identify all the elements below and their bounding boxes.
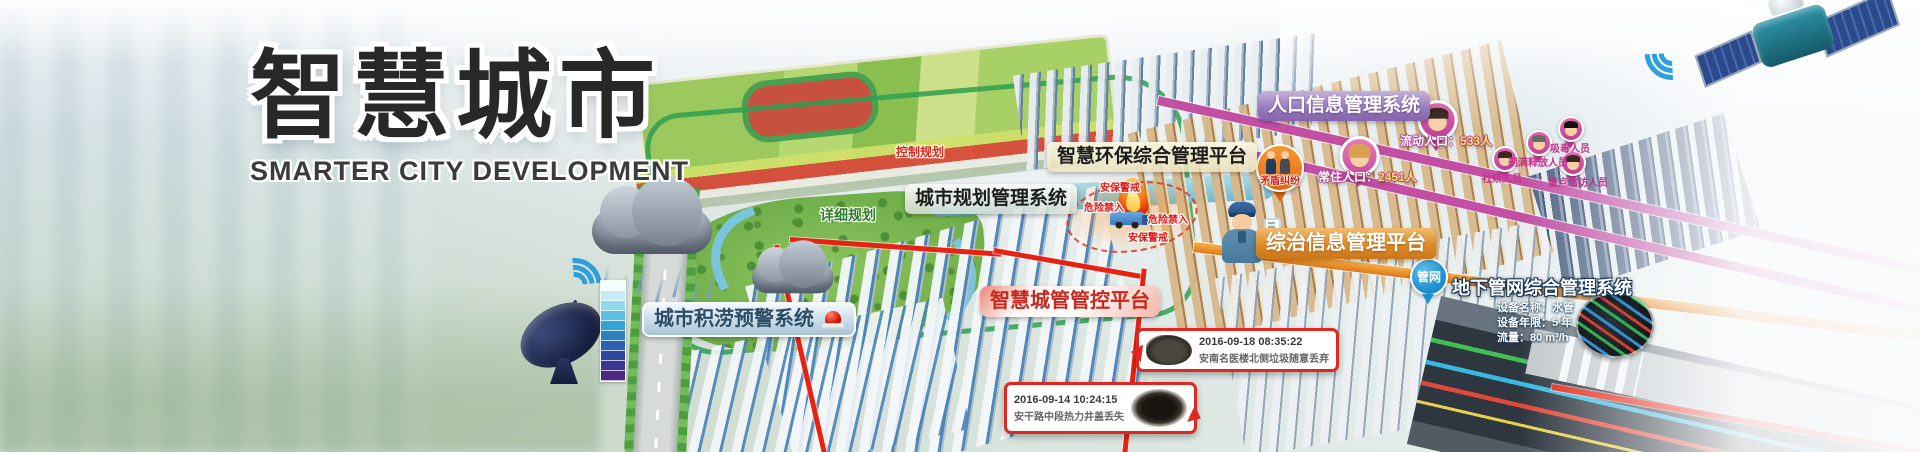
pipe-network-pin: 管网 bbox=[1410, 258, 1446, 310]
label-flood-warning-system: 城市积涝预警系统 bbox=[642, 302, 856, 337]
zone-label-detail-plan: 详细规划 bbox=[820, 205, 876, 225]
person-pin-resident bbox=[1339, 136, 1376, 196]
pipe-badge-label: 管网 bbox=[1410, 258, 1448, 296]
label-env-platform: 智慧环保综合管理平台 bbox=[1047, 142, 1257, 172]
cordon-text-bottom: 安保警戒 bbox=[1128, 229, 1168, 244]
pipe-photo bbox=[1576, 292, 1654, 358]
zone-label-control-plan: 控制规划 bbox=[896, 143, 944, 160]
callout-tail bbox=[1187, 406, 1213, 431]
stat-value: 533人 bbox=[1460, 134, 1492, 148]
title-block: 智慧城市 SMARTER CITY DEVELOPMENT bbox=[250, 44, 689, 187]
cordon-text-top: 安保警戒 bbox=[1100, 179, 1140, 194]
label-city-mgmt-platform: 智慧城管管控平台 bbox=[980, 286, 1160, 317]
satellite-body bbox=[1750, 2, 1836, 69]
rain-cloud-icon bbox=[752, 262, 834, 293]
stat-label: 流动人口： bbox=[1400, 134, 1460, 148]
label-governance-platform: 综治信息管理平台 bbox=[1256, 228, 1436, 259]
dispute-pin-circle: 矛盾纠纷 bbox=[1256, 144, 1304, 192]
stat-label: 常住人口： bbox=[1318, 170, 1378, 184]
pipe-info-line: 流量：80 m³/h bbox=[1497, 331, 1574, 346]
stat-value: 2451人 bbox=[1378, 170, 1417, 184]
no-entry-text-right: 危险禁入 bbox=[1148, 211, 1188, 226]
manhole-photo bbox=[1131, 389, 1187, 427]
person-pin-label: 刑满释放人员 bbox=[1508, 154, 1568, 169]
pipe-info-line: 设备年限：5 年 bbox=[1497, 316, 1574, 331]
pipe-info: 设备名称：水管 设备年限：5 年 流量：80 m³/h bbox=[1497, 301, 1574, 346]
dispute-pin-label: 矛盾纠纷 bbox=[1258, 172, 1302, 187]
person-pin-label: 吸毒人员 bbox=[1550, 140, 1590, 155]
callout-desc: 安南名医楼北侧垃圾随意丢弃 bbox=[1199, 350, 1329, 365]
label-population-system: 人口信息管理系统 bbox=[1258, 91, 1430, 121]
flood-depth-legend bbox=[600, 280, 626, 382]
pipe-badge-tail bbox=[1422, 294, 1434, 310]
page-subtitle: SMARTER CITY DEVELOPMENT bbox=[250, 156, 689, 187]
rain-cloud-icon bbox=[592, 208, 712, 254]
pipe-info-line: 设备名称：水管 bbox=[1497, 301, 1574, 316]
flood-warning-text: 城市积涝预警系统 bbox=[654, 307, 814, 332]
label-planning-system: 城市规划管理系统 bbox=[905, 184, 1077, 214]
callout-desc: 安干路中段热力井盖丢失 bbox=[1014, 408, 1124, 423]
incident-callout-garbage: 2016-09-18 08:35:22 安南名医楼北侧垃圾随意丢弃 bbox=[1136, 328, 1339, 372]
alarm-light-icon bbox=[822, 311, 844, 329]
callout-tail bbox=[1121, 342, 1143, 363]
person-avatar bbox=[1526, 130, 1552, 156]
garbage-photo bbox=[1146, 335, 1192, 365]
resident-population-stat: 常住人口：2451人 bbox=[1318, 168, 1417, 185]
dispute-pin: 矛盾纠纷 bbox=[1256, 144, 1304, 210]
person-avatar bbox=[1558, 116, 1584, 142]
person-pin-label: 重点信访人员 bbox=[1548, 174, 1608, 189]
label-pipe-network-system: 地下管网综合管理系统 bbox=[1452, 274, 1632, 300]
incident-callout-manhole: 2016-09-14 10:24:15 安干路中段热力井盖丢失 bbox=[1004, 382, 1197, 434]
callout-time: 2016-09-18 08:35:22 bbox=[1199, 336, 1329, 348]
person-pin-label: 社矫人员 bbox=[1482, 170, 1522, 185]
callout-time: 2016-09-14 10:24:15 bbox=[1014, 394, 1124, 406]
page-title: 智慧城市 bbox=[250, 44, 689, 150]
smart-city-banner: 智慧城市 SMARTER CITY DEVELOPMENT 控制规划 详细规划 … bbox=[0, 0, 1920, 452]
no-entry-text-left: 危险禁入 bbox=[1084, 199, 1124, 214]
floating-population-stat: 流动人口：533人 bbox=[1400, 132, 1492, 149]
